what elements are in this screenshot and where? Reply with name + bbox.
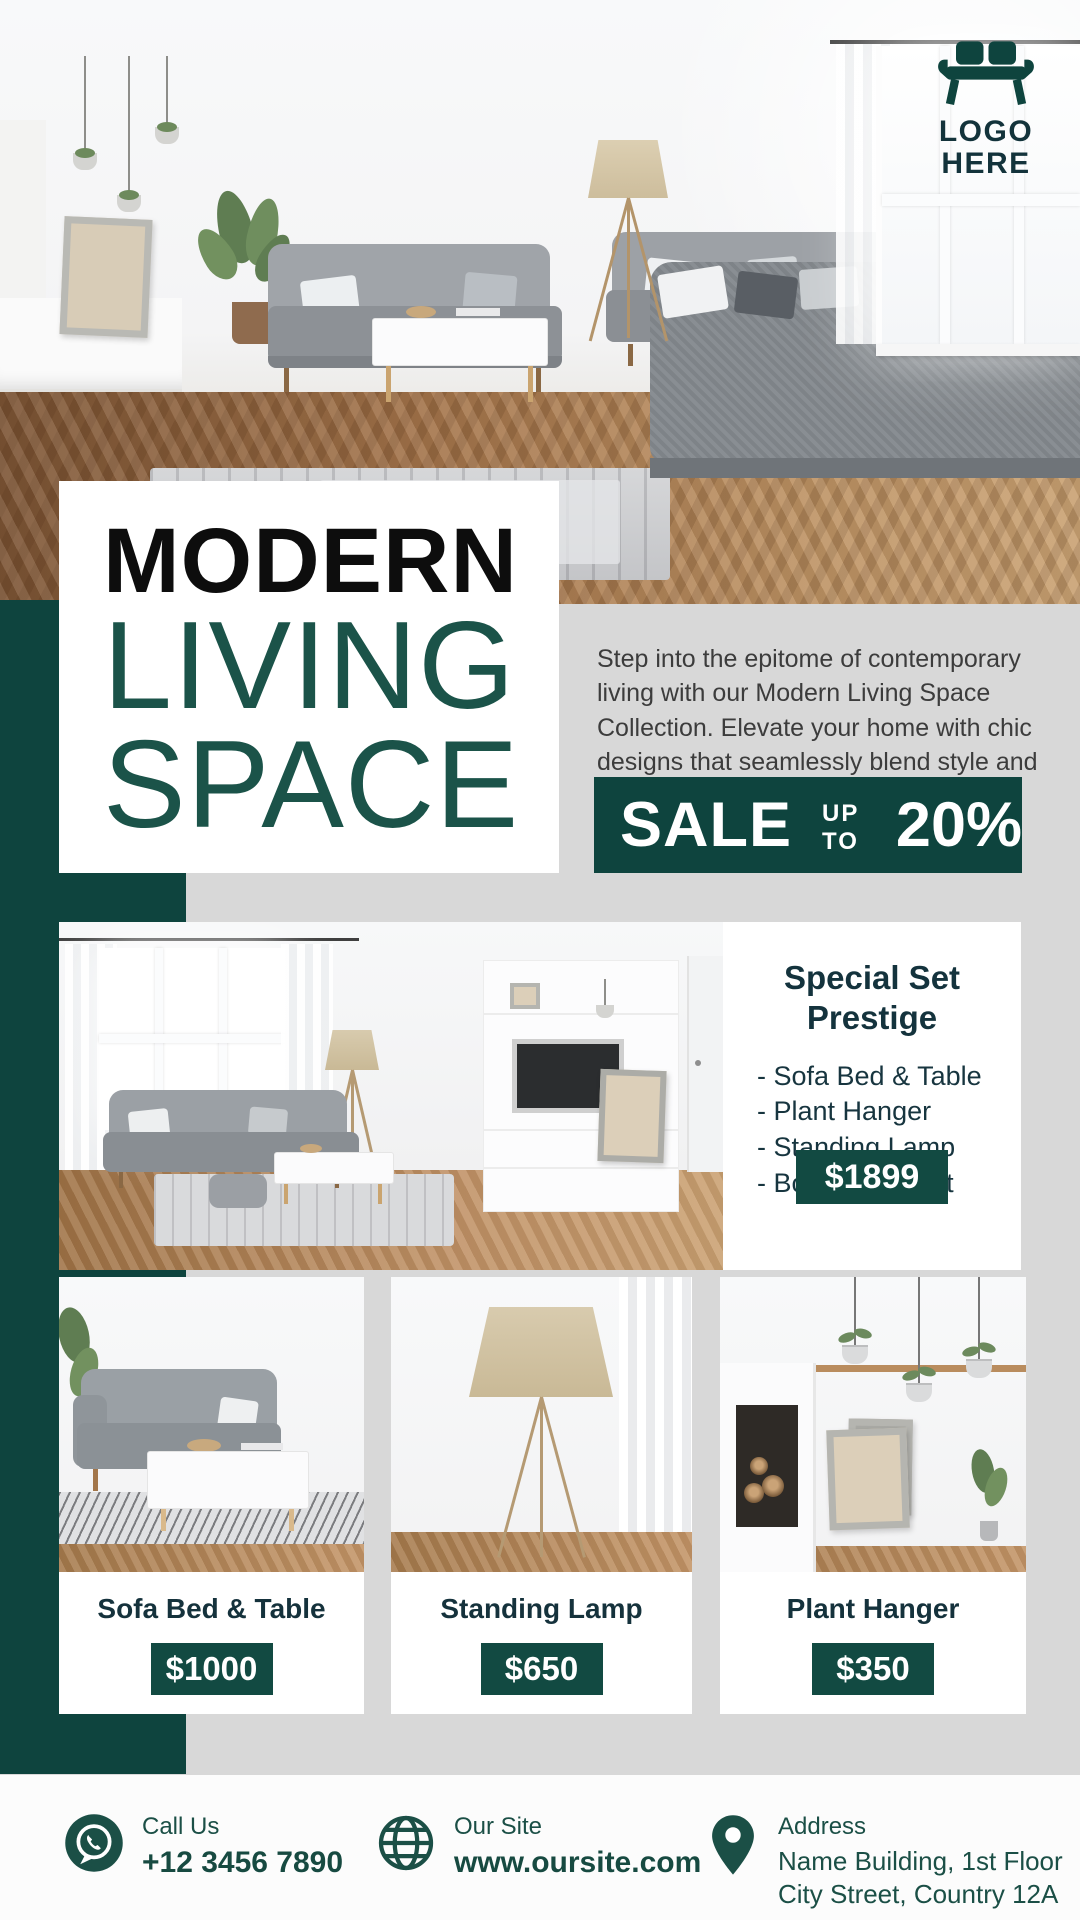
curtain-rod [59, 938, 359, 941]
coffee-table [372, 306, 548, 406]
title-space: SPACE [103, 726, 559, 845]
product-photo-plant-hanger [720, 1277, 1026, 1572]
location-pin-icon [706, 1813, 760, 1879]
special-item: - Plant Hanger [757, 1094, 1021, 1130]
leaning-picture-frame [597, 1069, 666, 1163]
small-frame [510, 983, 540, 1009]
product-price-button[interactable]: $1000 [151, 1643, 273, 1695]
title-living: LIVING [103, 607, 559, 726]
coffee-table [147, 1435, 309, 1531]
special-item: - Sofa Bed & Table [757, 1059, 1021, 1095]
address-line: Name Building, 1st Floor [778, 1845, 1063, 1878]
special-set-title: Special Set Prestige [723, 958, 1021, 1039]
logo-text: LOGO HERE [898, 116, 1074, 180]
title-card: MODERN LIVING SPACE [59, 481, 559, 873]
flyer-poster: LOGO HERE MODERN LIVING SPACE Step into … [0, 0, 1080, 1920]
fireplace [720, 1363, 816, 1572]
footer-site: Our Site www.oursite.com [376, 1813, 701, 1880]
sale-upto: UP TO [822, 800, 864, 856]
floor-lamp [580, 140, 680, 390]
product-name: Sofa Bed & Table [59, 1593, 364, 1625]
sofa-icon [934, 38, 1038, 108]
product-photo-sofa [59, 1277, 364, 1572]
product-photo-lamp [391, 1277, 692, 1572]
title-modern: MODERN [103, 515, 559, 607]
coffee-table [274, 1144, 394, 1206]
sale-label: SALE [620, 789, 792, 861]
product-price-button[interactable]: $350 [812, 1643, 934, 1695]
leaning-frame-front [826, 1428, 909, 1531]
address-line: City Street, Country 12A [778, 1878, 1063, 1911]
product-card-sofa-bed-table: Sofa Bed & Table $1000 [59, 1277, 364, 1714]
door [687, 956, 723, 1172]
hanging-planter [84, 56, 86, 154]
potted-plant [966, 1445, 1016, 1549]
product-card-standing-lamp: Standing Lamp $650 [391, 1277, 692, 1714]
hanging-planter [166, 56, 168, 128]
special-set-price-button[interactable]: $1899 [796, 1150, 948, 1204]
product-card-plant-hanger: Plant Hanger $350 [720, 1277, 1026, 1714]
product-name: Plant Hanger [720, 1593, 1026, 1625]
call-label: Call Us [142, 1813, 343, 1841]
picture-frame [59, 216, 152, 338]
sale-banner: SALE UP TO 20% [594, 777, 1022, 873]
special-set-photo [59, 922, 723, 1270]
special-set-panel: Special Set Prestige - Sofa Bed & Table … [723, 922, 1021, 1270]
window-sill [876, 344, 1080, 356]
footer-address: Address Name Building, 1st Floor City St… [706, 1813, 1063, 1912]
standing-lamp [451, 1307, 631, 1557]
whatsapp-icon [64, 1813, 124, 1873]
product-price-button[interactable]: $650 [481, 1643, 603, 1695]
hanging-planter [128, 56, 130, 196]
pouf [209, 1174, 267, 1208]
address-label: Address [778, 1813, 1063, 1841]
product-name: Standing Lamp [391, 1593, 692, 1625]
website-link[interactable]: www.oursite.com [454, 1846, 701, 1880]
brand-logo: LOGO HERE [898, 38, 1074, 180]
sale-percent: 20% [896, 789, 1022, 861]
globe-icon [376, 1813, 436, 1873]
phone-number[interactable]: +12 3456 7890 [142, 1846, 343, 1880]
site-label: Our Site [454, 1813, 701, 1841]
footer-call: Call Us +12 3456 7890 [64, 1813, 343, 1880]
